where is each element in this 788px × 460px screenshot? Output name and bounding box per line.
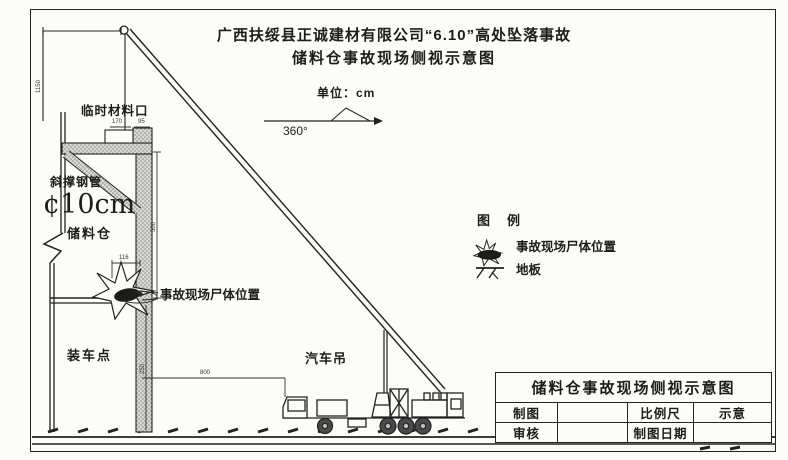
cell-date-label: 制图日期 <box>628 423 694 442</box>
rear-body <box>412 400 447 417</box>
diagram-title-line1: 广西扶绥县正诚建材有限公司“6.10”高处坠落事故 <box>0 27 788 44</box>
loading-point-label: 装车点 <box>67 349 112 364</box>
cell-date-value <box>694 423 771 442</box>
dim-body-offset: 116 <box>119 255 129 262</box>
cell-reviewer-value <box>558 423 628 442</box>
title-block-heading: 储料仓事故现场侧视示意图 <box>496 373 771 403</box>
cell-scale-value: 示意 <box>694 403 771 422</box>
dim-column-upper: 500 <box>151 222 158 232</box>
body-position-callout: 事故现场尸体位置 <box>160 288 260 302</box>
dim-column-lower: 250 <box>140 364 147 374</box>
dim-opening-w1: 170 <box>112 119 122 126</box>
legend-item-floor-label: 地板 <box>516 263 541 277</box>
angle-label: 360° <box>283 125 308 139</box>
slope-symbol <box>264 108 383 125</box>
brace-diameter-label: ¢10cm <box>43 189 135 220</box>
cell-reviewer-label: 审核 <box>496 423 558 442</box>
dim-ground-span: 800 <box>200 370 210 377</box>
truck-bed <box>317 400 347 416</box>
toolbox <box>348 419 366 427</box>
crane-boom <box>120 26 445 393</box>
cell-drafter-label: 制图 <box>496 403 558 422</box>
legend-floor-icon <box>476 268 504 279</box>
legend-title: 图 例 <box>477 214 522 229</box>
cell-drafter-value <box>558 403 628 422</box>
truck-crane-label: 汽车吊 <box>305 352 347 367</box>
break-symbol <box>44 233 63 263</box>
legend-body-icon <box>474 240 501 266</box>
title-block-row-2: 审核 制图日期 <box>496 423 771 442</box>
title-block: 储料仓事故现场侧视示意图 制图 比例尺 示意 审核 制图日期 <box>495 372 772 443</box>
material-opening <box>105 130 133 143</box>
legend-item-body-label: 事故现场尸体位置 <box>516 240 616 254</box>
temp-material-opening-label: 临时材料口 <box>81 104 149 118</box>
title-block-row-1: 制图 比例尺 示意 <box>496 403 771 423</box>
cell-scale-label: 比例尺 <box>628 403 694 422</box>
top-beam <box>62 143 152 154</box>
truck-crane <box>283 389 465 434</box>
brace-label: 斜撑钢管 <box>50 176 102 190</box>
dim-left-height: 1150 <box>36 80 43 93</box>
accident-scene-diagram: 广西扶绥县正诚建材有限公司“6.10”高处坠落事故 储料仓事故现场侧视示意图 单… <box>0 0 788 460</box>
diagram-title-line2: 储料仓事故现场侧视示意图 <box>0 50 788 67</box>
dim-opening-w2: 95 <box>138 119 145 126</box>
unit-label: 单位：cm <box>317 87 375 101</box>
silo-label: 储料仓 <box>67 227 112 242</box>
